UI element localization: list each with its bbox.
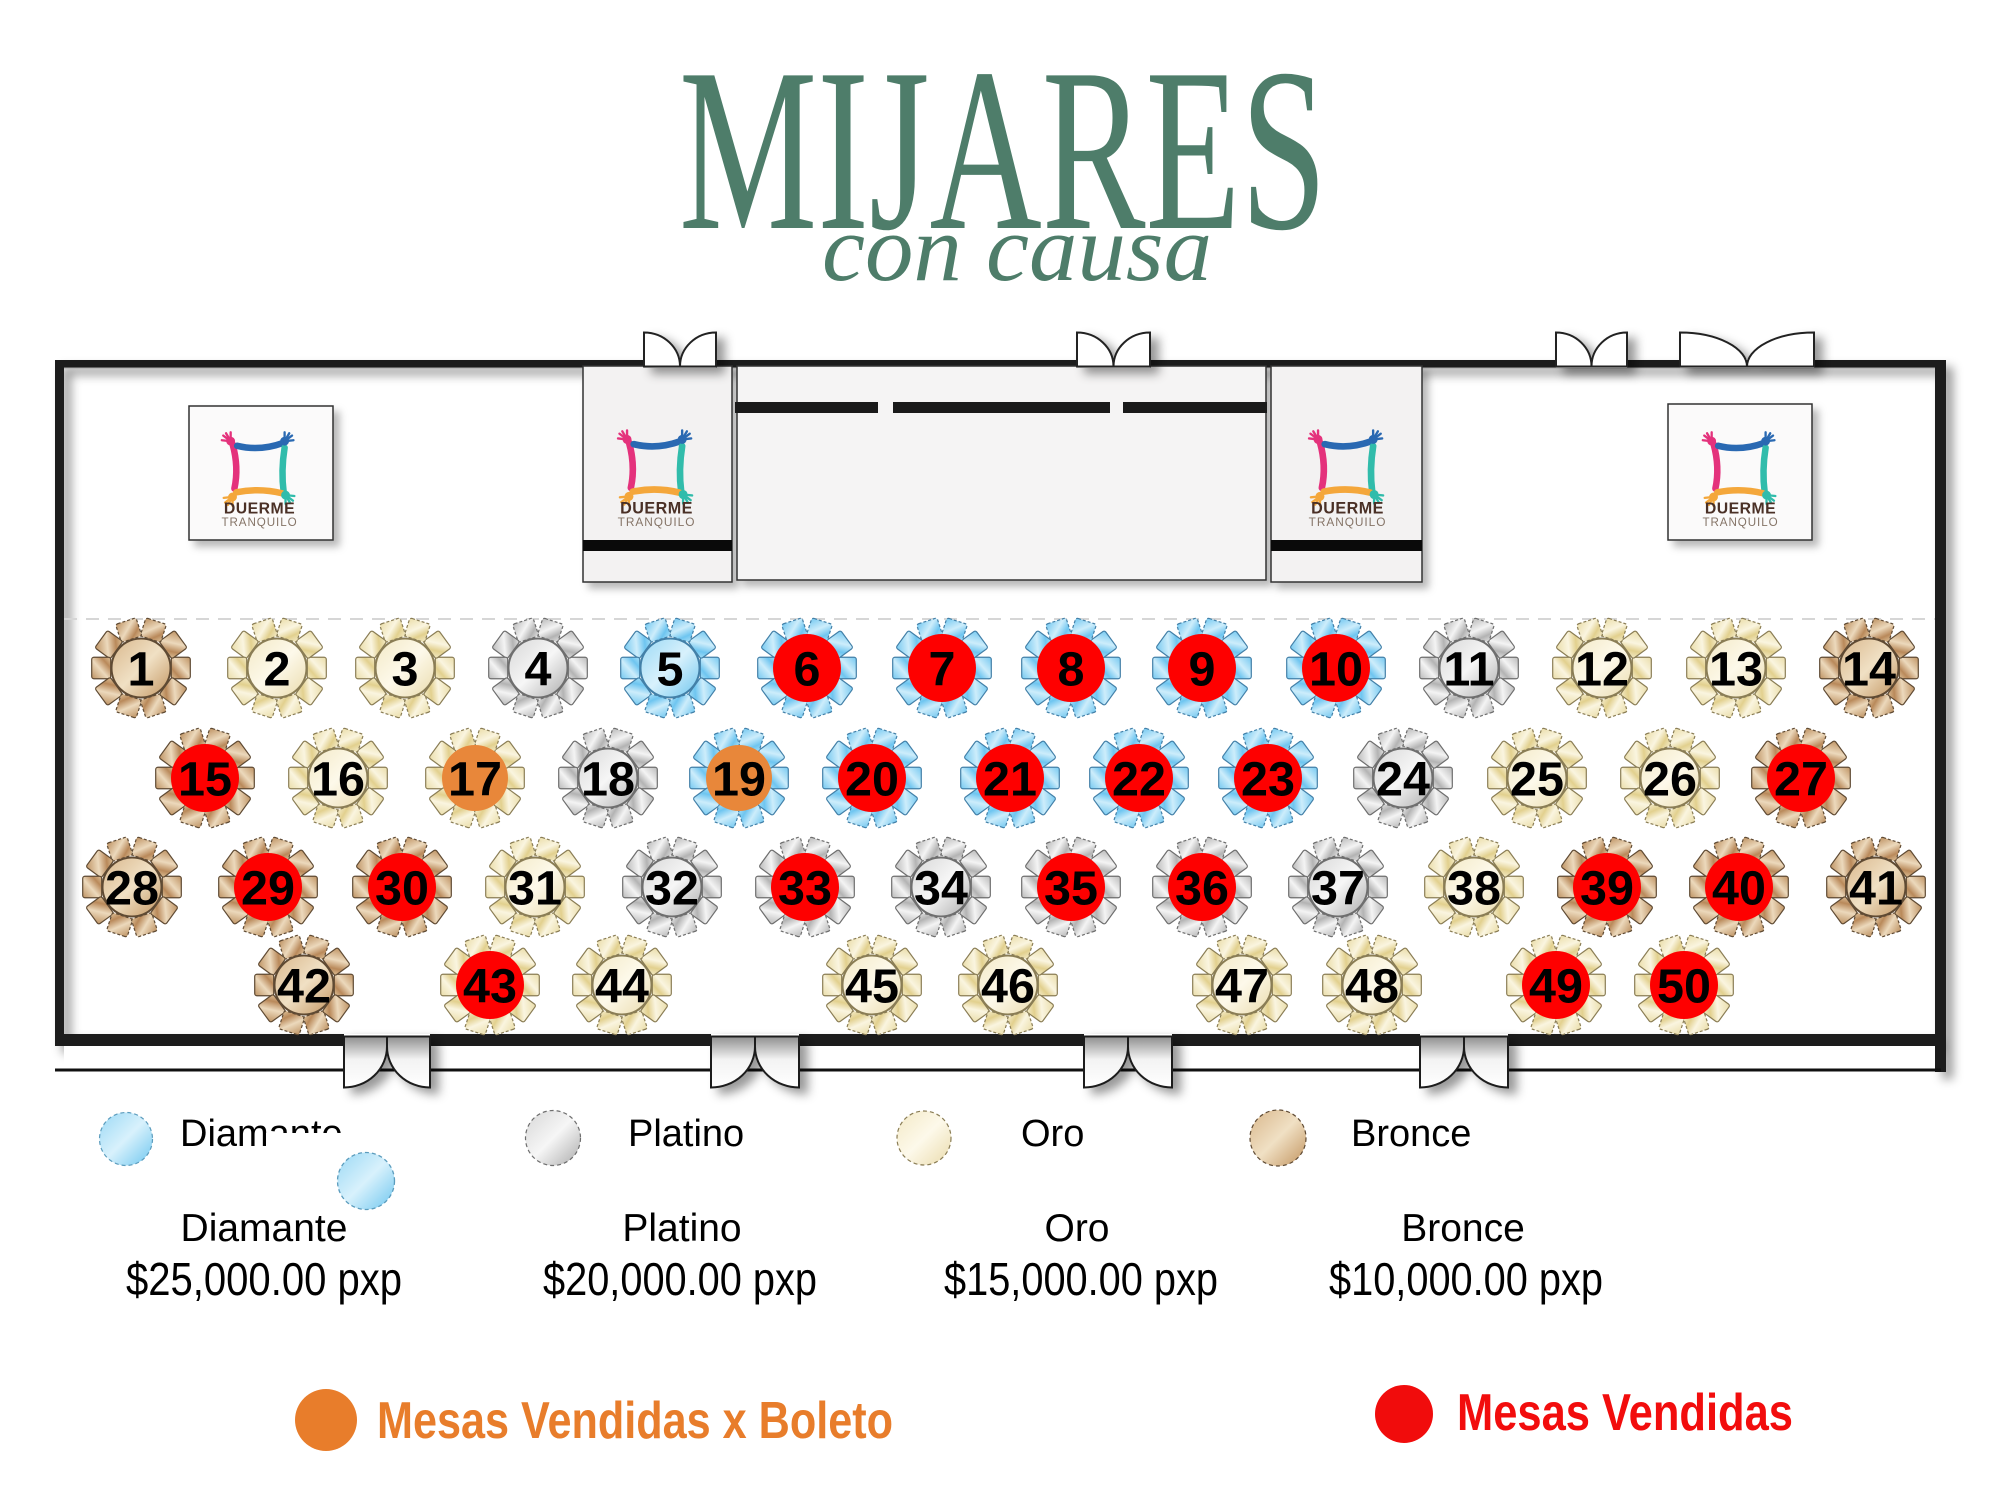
svg-text:$10,000.00 pxp: $10,000.00 pxp xyxy=(1329,1253,1603,1305)
svg-text:19: 19 xyxy=(712,753,766,807)
svg-text:20: 20 xyxy=(845,753,899,807)
svg-text:15: 15 xyxy=(178,753,232,807)
svg-text:Bronce: Bronce xyxy=(1401,1207,1525,1250)
svg-text:Oro: Oro xyxy=(1044,1207,1109,1250)
svg-text:25: 25 xyxy=(1510,753,1564,807)
svg-text:10: 10 xyxy=(1309,643,1363,697)
svg-text:$20,000.00 pxp: $20,000.00 pxp xyxy=(543,1253,817,1305)
svg-text:30: 30 xyxy=(375,862,429,916)
svg-text:45: 45 xyxy=(845,960,899,1014)
svg-text:42: 42 xyxy=(277,960,331,1014)
svg-text:33: 33 xyxy=(778,862,832,916)
svg-text:Platino: Platino xyxy=(628,1113,744,1155)
svg-text:8: 8 xyxy=(1058,643,1085,697)
svg-text:48: 48 xyxy=(1345,960,1399,1014)
svg-text:6: 6 xyxy=(794,643,821,697)
svg-text:2: 2 xyxy=(264,643,291,697)
svg-text:Mesas Vendidas: Mesas Vendidas xyxy=(1457,1384,1793,1442)
svg-text:34: 34 xyxy=(914,862,968,916)
svg-text:41: 41 xyxy=(1849,862,1903,916)
svg-text:24: 24 xyxy=(1376,753,1430,807)
svg-text:38: 38 xyxy=(1447,862,1501,916)
svg-text:11: 11 xyxy=(1443,643,1494,697)
svg-text:Diamante: Diamante xyxy=(181,1207,348,1250)
svg-text:31: 31 xyxy=(508,862,562,916)
svg-text:23: 23 xyxy=(1241,753,1295,807)
svg-text:14: 14 xyxy=(1842,643,1896,697)
svg-text:39: 39 xyxy=(1580,862,1634,916)
svg-text:47: 47 xyxy=(1215,960,1269,1014)
svg-text:Platino: Platino xyxy=(622,1207,741,1250)
svg-text:36: 36 xyxy=(1175,862,1229,916)
svg-text:50: 50 xyxy=(1657,960,1711,1014)
svg-text:13: 13 xyxy=(1709,643,1763,697)
svg-text:21: 21 xyxy=(983,753,1037,807)
svg-text:26: 26 xyxy=(1643,753,1697,807)
svg-text:$15,000.00 pxp: $15,000.00 pxp xyxy=(944,1253,1218,1305)
svg-text:16: 16 xyxy=(311,753,365,807)
svg-text:12: 12 xyxy=(1575,643,1629,697)
svg-text:Oro: Oro xyxy=(1021,1113,1084,1155)
svg-text:7: 7 xyxy=(929,643,956,697)
svg-text:37: 37 xyxy=(1311,862,1365,916)
svg-text:43: 43 xyxy=(463,960,517,1014)
svg-text:17: 17 xyxy=(448,753,502,807)
svg-text:27: 27 xyxy=(1774,753,1828,807)
svg-text:$25,000.00 pxp: $25,000.00 pxp xyxy=(126,1253,402,1305)
svg-text:22: 22 xyxy=(1112,753,1166,807)
svg-text:4: 4 xyxy=(525,643,552,697)
svg-text:1: 1 xyxy=(128,643,155,697)
svg-text:con causa: con causa xyxy=(822,197,1212,301)
svg-text:32: 32 xyxy=(645,862,699,916)
svg-text:9: 9 xyxy=(1189,643,1216,697)
svg-text:3: 3 xyxy=(392,643,419,697)
svg-text:5: 5 xyxy=(657,643,684,697)
svg-text:Bronce: Bronce xyxy=(1351,1113,1471,1155)
svg-text:49: 49 xyxy=(1529,960,1583,1014)
svg-text:Mesas Vendidas x Boleto: Mesas Vendidas x Boleto xyxy=(377,1392,893,1450)
svg-text:46: 46 xyxy=(981,960,1035,1014)
svg-text:44: 44 xyxy=(595,960,649,1014)
svg-text:18: 18 xyxy=(581,753,635,807)
svg-text:28: 28 xyxy=(105,862,159,916)
svg-text:35: 35 xyxy=(1044,862,1098,916)
svg-text:29: 29 xyxy=(241,862,295,916)
svg-text:40: 40 xyxy=(1712,862,1766,916)
